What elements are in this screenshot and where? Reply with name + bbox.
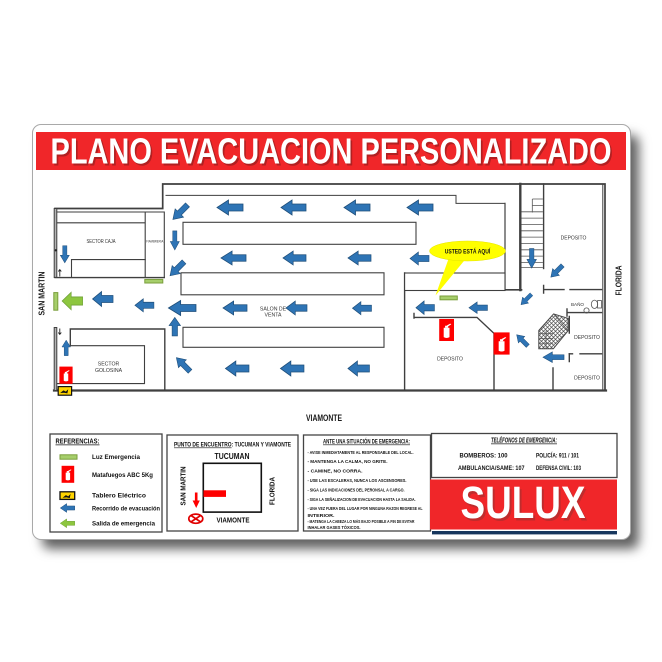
svg-text:- SIGA LA SEÑALIZACION DE EVAC: - SIGA LA SEÑALIZACION DE EVACUACION HAS… <box>308 496 416 502</box>
svg-text:POLICÍA: 911 / 101: POLICÍA: 911 / 101 <box>536 451 579 460</box>
svg-text:DEPOSITO: DEPOSITO <box>561 236 587 242</box>
svg-text:USTED ESTÁ AQUÍ: USTED ESTÁ AQUÍ <box>445 246 491 255</box>
svg-text:VIAMONTE: VIAMONTE <box>306 413 342 423</box>
svg-text:Recorrido de evacuación: Recorrido de evacuación <box>92 506 160 513</box>
svg-text:SAN MARTIN: SAN MARTIN <box>37 272 47 316</box>
svg-text:INTERIOR.: INTERIOR. <box>308 513 335 518</box>
svg-text:INHALAR GASES TÓXICOS.: INHALAR GASES TÓXICOS. <box>308 523 361 530</box>
svg-text:PUNTO DE ENCUENTRO: TUCUMAN Y: PUNTO DE ENCUENTRO: TUCUMAN Y VIAMONTE <box>174 442 291 449</box>
svg-text:FLORIDA: FLORIDA <box>614 266 624 296</box>
svg-text:Tablero Eléctrico: Tablero Eléctrico <box>92 493 146 500</box>
svg-text:DEFENSA CIVIL: 103: DEFENSA CIVIL: 103 <box>536 465 581 472</box>
svg-text:GOLOSINA: GOLOSINA <box>95 368 123 374</box>
svg-text:VIAMONTE: VIAMONTE <box>217 516 250 525</box>
svg-text:- CAMINE, NO CORRA.: - CAMINE, NO CORRA. <box>308 469 363 474</box>
svg-text:SULUX: SULUX <box>461 477 586 528</box>
svg-text:DEPOSITO: DEPOSITO <box>574 376 600 382</box>
svg-text:Luz Emergencia: Luz Emergencia <box>92 454 140 461</box>
svg-text:- MATENGA LA CABEZA LO MÁS BAJ: - MATENGA LA CABEZA LO MÁS BAJO POSIBLE … <box>308 518 416 524</box>
svg-text:FIAMBRERIA: FIAMBRERIA <box>146 240 163 244</box>
svg-text:SECTOR: SECTOR <box>98 362 120 368</box>
svg-text:- AVISE INMEDIATAMENTE AL RESP: - AVISE INMEDIATAMENTE AL RESPONSABLE DE… <box>308 450 414 455</box>
svg-text:DEPOSITO: DEPOSITO <box>574 335 600 341</box>
svg-text:Matafuegos ABC 5Kg: Matafuegos ABC 5Kg <box>92 472 153 479</box>
svg-text:DEPOSITO: DEPOSITO <box>437 357 463 363</box>
svg-text:REFERENCIAS:: REFERENCIAS: <box>56 437 100 446</box>
svg-text:FLORIDA: FLORIDA <box>268 477 277 505</box>
svg-text:BOMBEROS: 100: BOMBEROS: 100 <box>460 453 508 460</box>
svg-text:Salida de emergencia: Salida de emergencia <box>92 521 155 528</box>
svg-text:- USE LAS ESCALERAS, NUNCA LOS: - USE LAS ESCALERAS, NUNCA LOS ASCENSORE… <box>308 478 407 483</box>
svg-text:AMBULANCIA/SAME: 107: AMBULANCIA/SAME: 107 <box>458 465 525 472</box>
svg-text:- UNA VEZ FUERA DEL LUGAR POR: - UNA VEZ FUERA DEL LUGAR POR NINGUNA RA… <box>308 506 423 511</box>
svg-text:- MANTENGA LA CALMA, NO GRITE.: - MANTENGA LA CALMA, NO GRITE. <box>308 459 388 464</box>
svg-text:BAÑO: BAÑO <box>571 301 584 307</box>
svg-text:PLANO EVACUACION PERSONALIZADO: PLANO EVACUACION PERSONALIZADO <box>51 131 612 172</box>
svg-text:ANTE UNA SITUACIÓN DE EMERGENC: ANTE UNA SITUACIÓN DE EMERGENCIA: <box>323 437 410 446</box>
svg-text:SECTOR CAJA: SECTOR CAJA <box>87 239 116 245</box>
svg-text:VENTA: VENTA <box>265 313 282 319</box>
svg-text:- SIGA LAS INDICACIONES DEL PE: - SIGA LAS INDICACIONES DEL PERONSAL A C… <box>308 487 405 492</box>
svg-text:TUCUMAN: TUCUMAN <box>215 452 250 461</box>
svg-text:TELÉFONOS DE EMERGENCIA:: TELÉFONOS DE EMERGENCIA: <box>491 436 557 445</box>
svg-text:SAN MARTIN: SAN MARTIN <box>179 467 188 506</box>
